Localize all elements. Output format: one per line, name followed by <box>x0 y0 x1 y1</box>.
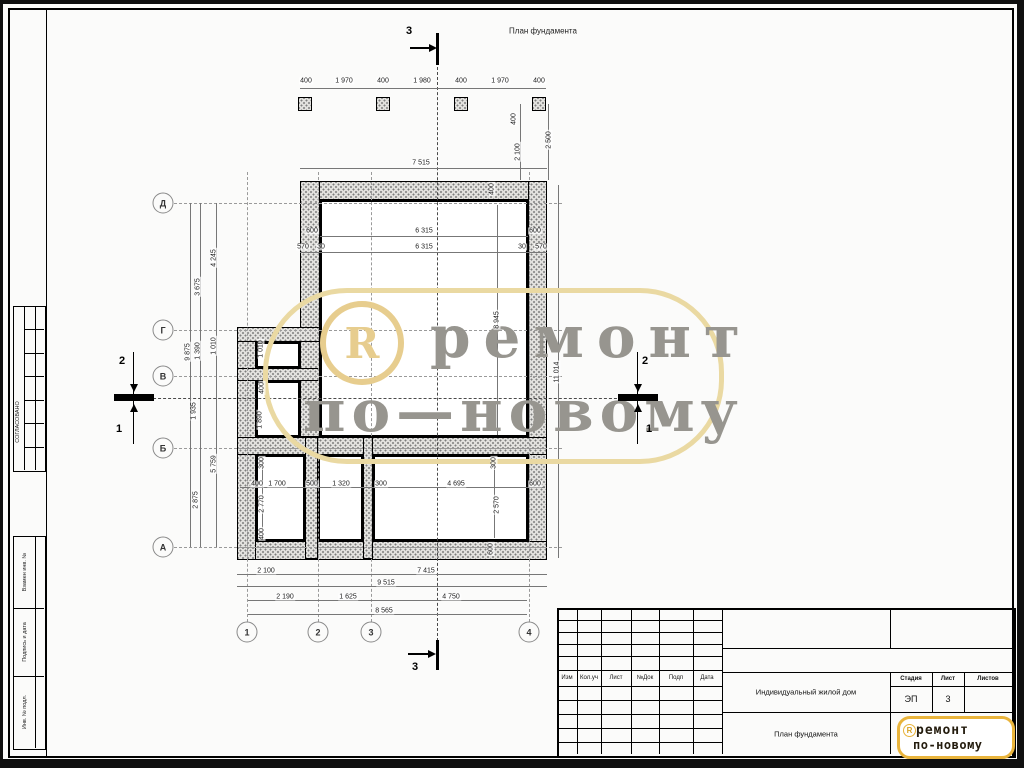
drawing-sheet: СОГЛАСОВАНО Взамен инв. № Подпись и дата… <box>0 0 1024 768</box>
tb-header-list: Лист <box>609 675 622 681</box>
tb-header-izm: Изм <box>561 675 572 681</box>
stamp-inv-orig-label: Инв. № подл. <box>22 695 28 729</box>
tb-header-podp: Подп <box>669 675 683 681</box>
page-edge <box>0 759 1024 768</box>
section-marker-1-left: 1 <box>116 424 122 435</box>
frame-line <box>24 376 44 377</box>
tb-sheets-label: Листов <box>977 676 998 682</box>
page-edge <box>0 0 1024 4</box>
section-arrowhead-icon <box>428 650 436 658</box>
tb-header-koluch: Кол.уч <box>580 675 598 681</box>
page-edge <box>1017 0 1024 768</box>
section-marker-2-right: 2 <box>642 356 648 367</box>
frame-line <box>24 423 44 424</box>
section-cut-bar <box>114 394 154 401</box>
tb-stage-label: Стадия <box>900 676 922 682</box>
stamp-sign-date-label: Подпись и дата <box>22 622 28 662</box>
section-cut-bar <box>618 394 658 401</box>
registered-icon: R <box>903 724 916 737</box>
frame-line <box>13 676 44 677</box>
frame-line <box>24 329 44 330</box>
tb-stage-value: ЭП <box>905 694 918 704</box>
frame-line <box>35 536 36 748</box>
tb-project-name: Индивидуальный жилой дом <box>756 688 856 697</box>
tb-sheet-label: Лист <box>941 676 955 682</box>
logo-text-line1: ремонт <box>916 723 969 738</box>
logo-text-line2: по-новому <box>913 738 983 752</box>
frame-line <box>24 447 44 448</box>
frame-line <box>35 306 36 470</box>
section-marker-3-bottom: 3 <box>412 662 418 673</box>
tb-sheet-value: 3 <box>945 694 950 704</box>
section-arrowhead-icon <box>130 404 138 412</box>
tb-header-data: Дата <box>700 675 713 681</box>
section-cut-bar <box>436 33 439 65</box>
frame-line <box>24 353 44 354</box>
frame-line <box>24 306 25 470</box>
section-marker-3-top: 3 <box>406 26 412 37</box>
section-arrowhead-icon <box>634 384 642 392</box>
section-arrowhead-icon <box>130 384 138 392</box>
section-marker-2-left: 2 <box>119 356 125 367</box>
plan-title: План фундамента <box>509 27 577 36</box>
frame-line <box>24 400 44 401</box>
frame-line <box>46 8 47 756</box>
section-arrowhead-icon <box>634 404 642 412</box>
tb-doc-title: План фундамента <box>774 730 838 739</box>
frame-line <box>13 608 44 609</box>
company-logo: R ремонт по-новому <box>897 716 1015 759</box>
section-marker-1-right: 1 <box>646 424 652 435</box>
screenshot-root: { "drawing": { "title": "План фундамента… <box>0 0 1024 768</box>
section-cut-bar <box>436 640 439 670</box>
stamp-grid <box>13 536 46 750</box>
stamp-replace-inv-label: Взамен инв. № <box>22 553 28 592</box>
stamp-approved-label: СОГЛАСОВАНО <box>15 401 21 443</box>
page-edge <box>0 0 3 768</box>
tb-header-ndok: №Док <box>637 675 654 681</box>
